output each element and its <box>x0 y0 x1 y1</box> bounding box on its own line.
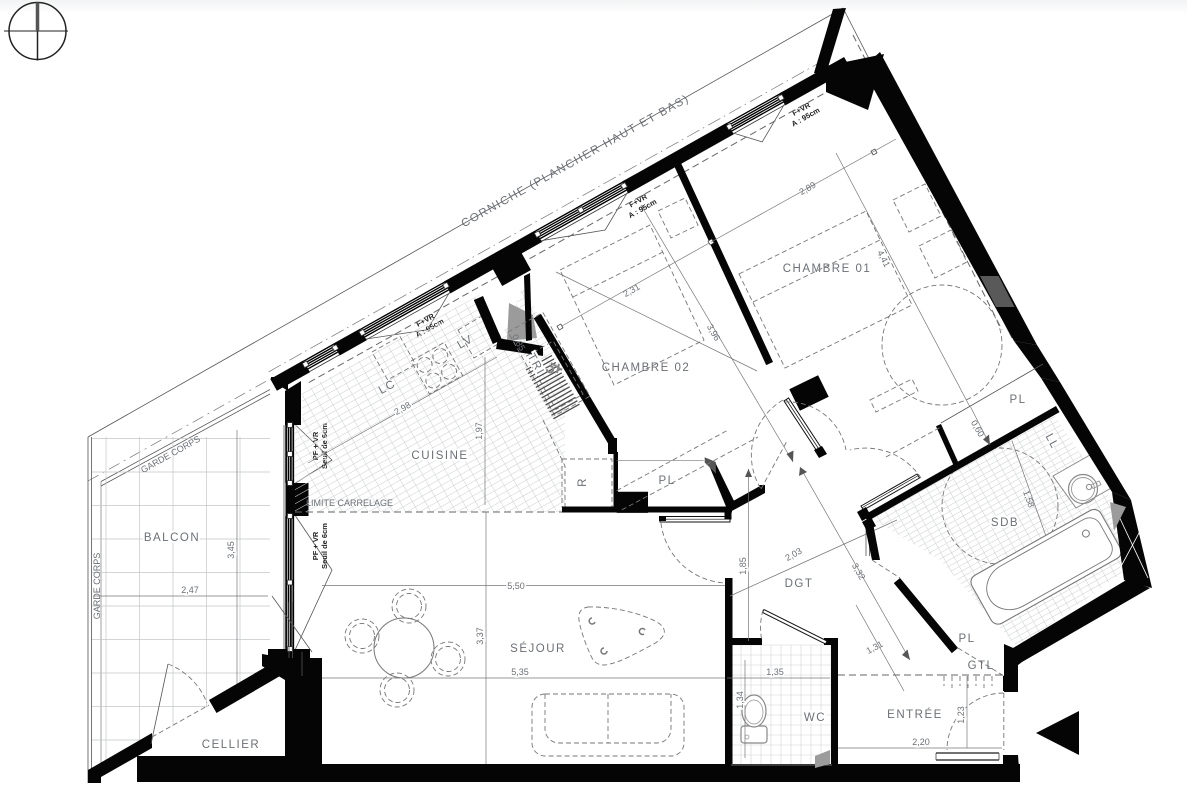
svg-text:PL: PL <box>1009 394 1026 406</box>
svg-text:1,35: 1,35 <box>766 667 784 677</box>
svg-text:LIMITE CARRELAGE: LIMITE CARRELAGE <box>306 498 393 508</box>
svg-text:R: R <box>577 477 589 487</box>
svg-text:CUISINE: CUISINE <box>411 450 468 462</box>
svg-text:CELLIER: CELLIER <box>202 739 260 751</box>
svg-text:1,23: 1,23 <box>956 706 966 724</box>
svg-text:ENTRÉE: ENTRÉE <box>887 708 943 721</box>
svg-text:BALCON: BALCON <box>144 532 200 544</box>
svg-text:SÉJOUR: SÉJOUR <box>510 642 566 655</box>
svg-text:PL: PL <box>958 633 975 645</box>
svg-text:1,97: 1,97 <box>474 422 484 440</box>
svg-text:2,47: 2,47 <box>181 585 199 595</box>
svg-text:1,34: 1,34 <box>735 691 745 709</box>
svg-text:SDB: SDB <box>991 517 1019 529</box>
svg-text:1,85: 1,85 <box>738 557 748 575</box>
svg-text:CHAMBRE 02: CHAMBRE 02 <box>602 362 691 374</box>
svg-text:PF + VR: PF + VR <box>311 531 320 560</box>
svg-text:3,45: 3,45 <box>226 541 236 559</box>
svg-text:5,35: 5,35 <box>511 667 529 677</box>
svg-text:DGT: DGT <box>785 578 814 590</box>
svg-text:GARDE CORPS: GARDE CORPS <box>92 553 102 620</box>
svg-text:WC: WC <box>804 712 826 724</box>
svg-text:Seuil de 6cm: Seuil de 6cm <box>320 423 329 469</box>
svg-text:3,37: 3,37 <box>475 627 485 645</box>
svg-text:CHAMBRE 01: CHAMBRE 01 <box>783 263 872 275</box>
svg-text:GTL: GTL <box>968 660 995 672</box>
svg-text:5,50: 5,50 <box>507 581 525 591</box>
svg-text:Seuil de 6cm: Seuil de 6cm <box>320 523 329 569</box>
svg-text:2,20: 2,20 <box>912 737 930 747</box>
